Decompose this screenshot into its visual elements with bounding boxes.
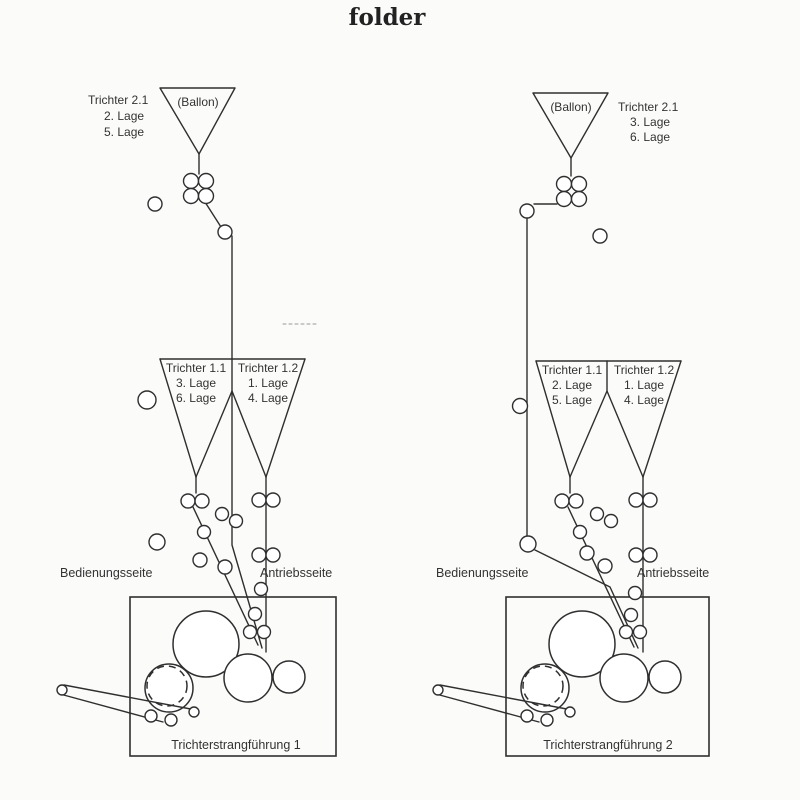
funnel21-lage-b: 6. Lage — [630, 130, 670, 144]
belt-end-roller — [57, 685, 67, 695]
roller — [244, 626, 257, 639]
roller — [249, 608, 262, 621]
roller — [198, 526, 211, 539]
roller — [255, 583, 268, 596]
drive-side-label: Antriebsseite — [260, 566, 332, 580]
cylinder-dashed-inner — [523, 666, 563, 706]
funnel11-lage-b: 6. Lage — [176, 391, 216, 405]
funnel12-lage-a: 1. Lage — [248, 376, 288, 390]
guide-roller — [218, 225, 232, 239]
belt-roller — [565, 707, 575, 717]
ballon-label: (Ballon) — [177, 95, 218, 109]
funnel12-title: Trichter 1.2 — [614, 363, 675, 377]
roller — [580, 546, 594, 560]
scanned-manual-page: folder Trichterstrangführung 1 (Ballo — [0, 0, 800, 800]
cylinder-medium — [224, 654, 272, 702]
belt-roller — [189, 707, 199, 717]
folder-box-label: Trichterstrangführung 2 — [543, 738, 673, 752]
belt-end-roller — [433, 685, 443, 695]
guide-roller — [593, 229, 607, 243]
roller — [574, 526, 587, 539]
ballon-funnel: (Ballon) — [533, 93, 608, 176]
diagram-2: Trichterstrangführung 2 (Ballon) Trichte… — [433, 93, 709, 756]
funnel11-lage-a: 3. Lage — [176, 376, 216, 390]
belt-roller — [165, 714, 177, 726]
belt-roller — [521, 710, 533, 722]
roller — [557, 192, 572, 207]
funnel21-lage-a: 3. Lage — [630, 115, 670, 129]
funnel21-lage-a: 2. Lage — [104, 109, 144, 123]
guide-roller — [513, 399, 528, 414]
roller — [634, 626, 647, 639]
guide-roller — [520, 536, 536, 552]
cylinder-small — [273, 661, 305, 693]
guide-roller — [138, 391, 156, 409]
roller — [252, 548, 266, 562]
cylinder-medium — [600, 654, 648, 702]
roller — [591, 508, 604, 521]
roller — [181, 494, 195, 508]
roller — [625, 609, 638, 622]
funnel12-lage-b: 4. Lage — [624, 393, 664, 407]
roller — [216, 508, 229, 521]
funnel12-lage-b: 4. Lage — [248, 391, 288, 405]
roller — [643, 548, 657, 562]
page-title: folder — [349, 4, 427, 31]
ballon-label: (Ballon) — [550, 100, 591, 114]
roller — [620, 626, 633, 639]
roller — [572, 177, 587, 192]
roller — [598, 559, 612, 573]
roller — [266, 548, 280, 562]
funnel21-title: Trichter 2.1 — [618, 100, 679, 114]
ballon-funnel: (Ballon) — [160, 88, 235, 174]
roller — [629, 587, 642, 600]
roller — [643, 493, 657, 507]
roller — [184, 174, 199, 189]
operator-side-label: Bedienungsseite — [60, 566, 152, 580]
operator-side-label: Bedienungsseite — [436, 566, 528, 580]
funnel11-title: Trichter 1.1 — [166, 361, 227, 375]
folder-unit-1: Trichterstrangführung 1 — [57, 597, 336, 756]
nip-roller-cluster — [557, 177, 587, 207]
roller — [252, 493, 266, 507]
cylinder-small — [649, 661, 681, 693]
funnel21-title: Trichter 2.1 — [88, 93, 149, 107]
belt-roller — [541, 714, 553, 726]
roller — [199, 174, 214, 189]
guide-roller — [148, 197, 162, 211]
roller — [572, 192, 587, 207]
funnel12-title: Trichter 1.2 — [238, 361, 299, 375]
diagram-canvas: folder Trichterstrangführung 1 (Ballo — [0, 0, 800, 800]
belt-roller — [145, 710, 157, 722]
diagram-1: Trichterstrangführung 1 (Ballon) Trichte… — [57, 88, 336, 756]
roller — [266, 493, 280, 507]
funnel12-lage-a: 1. Lage — [624, 378, 664, 392]
web-line — [205, 202, 221, 227]
guide-roller — [149, 534, 165, 550]
funnel21-caption: Trichter 2.1 3. Lage 6. Lage — [618, 100, 679, 144]
roller — [184, 189, 199, 204]
roller — [629, 548, 643, 562]
drive-side-label: Antriebsseite — [637, 566, 709, 580]
roller — [569, 494, 583, 508]
roller — [199, 189, 214, 204]
roller — [218, 560, 232, 574]
funnel21-lage-b: 5. Lage — [104, 125, 144, 139]
nip-roller-cluster — [184, 174, 214, 204]
roller — [195, 494, 209, 508]
guide-roller — [520, 204, 534, 218]
folder-box-label: Trichterstrangführung 1 — [171, 738, 301, 752]
funnel21-caption: Trichter 2.1 2. Lage 5. Lage — [88, 93, 149, 139]
roller — [629, 493, 643, 507]
roller — [230, 515, 243, 528]
roller — [555, 494, 569, 508]
cylinder-dashed-inner — [147, 666, 187, 706]
folder-unit-2: Trichterstrangführung 2 — [433, 597, 709, 756]
roller — [193, 553, 207, 567]
roller — [605, 515, 618, 528]
funnel11-lage-b: 5. Lage — [552, 393, 592, 407]
roller — [258, 626, 271, 639]
former-funnels: Trichter 1.1 2. Lage 5. Lage Trichter 1.… — [536, 361, 681, 477]
funnel11-lage-a: 2. Lage — [552, 378, 592, 392]
roller — [557, 177, 572, 192]
funnel11-title: Trichter 1.1 — [542, 363, 603, 377]
